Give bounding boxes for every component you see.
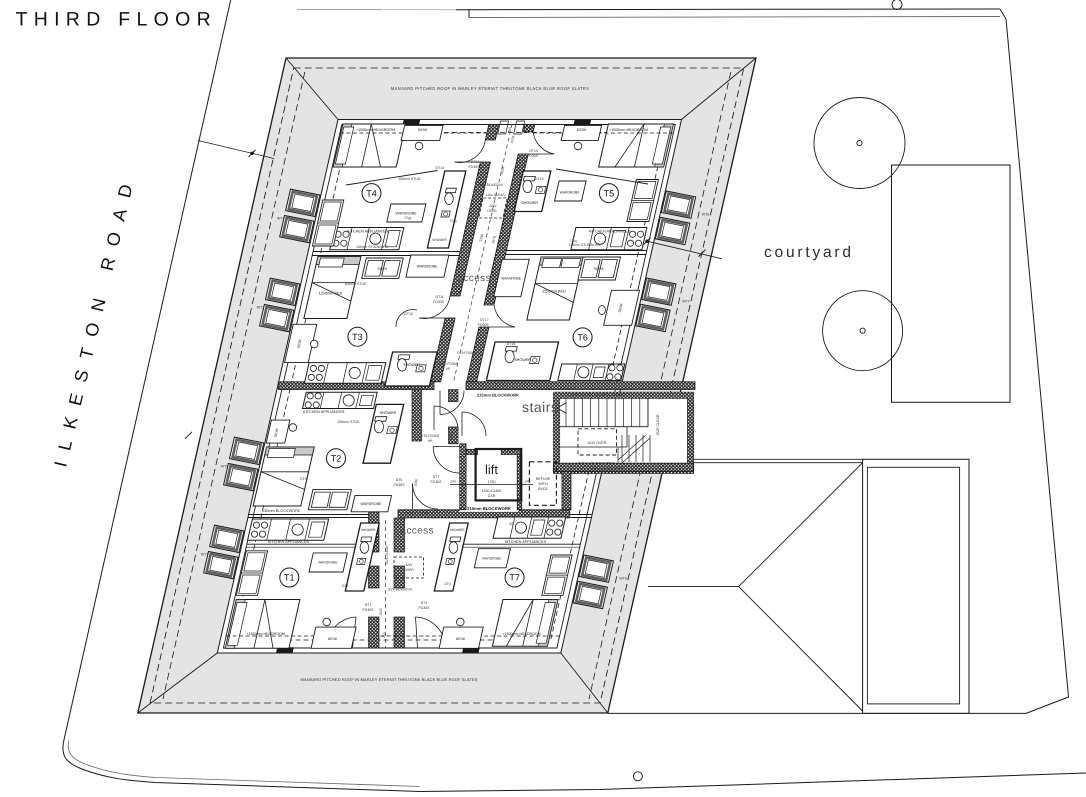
- svg-text:SVP BOXED IN: SVP BOXED IN: [479, 183, 503, 187]
- svg-text:FD30S: FD30S: [527, 154, 539, 158]
- svg-text:DT10 FD30S: DT10 FD30S: [438, 362, 459, 366]
- svg-text:WT7: WT7: [682, 299, 690, 303]
- svg-text:T5: T5: [604, 188, 615, 198]
- svg-text:courtyard: courtyard: [764, 244, 854, 261]
- svg-text:140mm BLOCKWORK: 140mm BLOCKWORK: [590, 466, 625, 470]
- svg-text:WARDROBE: WARDROBE: [318, 561, 338, 565]
- svg-text:FD30S: FD30S: [431, 480, 443, 484]
- svg-text:SHOWER: SHOWER: [432, 238, 447, 242]
- svg-text:T1: T1: [284, 573, 295, 583]
- svg-text:WITH: WITH: [538, 482, 548, 486]
- svg-text:VP: VP: [428, 439, 433, 443]
- svg-text:access: access: [458, 273, 492, 284]
- svg-text:AOV: AOV: [489, 204, 497, 208]
- svg-text:KITCHEN APPLIANCES: KITCHEN APPLIANCES: [589, 230, 631, 234]
- svg-text:+1500mm HEADROOM: +1500mm HEADROOM: [356, 128, 395, 132]
- svg-text:2525 CLEAR: 2525 CLEAR: [385, 545, 389, 565]
- svg-text:DT5: DT5: [396, 478, 403, 482]
- svg-text:FD30S: FD30S: [394, 483, 406, 487]
- svg-text:SHOWER: SHOWER: [514, 358, 531, 362]
- svg-text:1200 CLEAR: 1200 CLEAR: [486, 193, 506, 197]
- svg-text:FD30S: FD30S: [363, 608, 375, 612]
- svg-text:DT15: DT15: [529, 149, 538, 153]
- svg-text:DESK: DESK: [577, 128, 587, 132]
- svg-text:215mm BLOCKWORK: 215mm BLOCKWORK: [477, 393, 519, 398]
- svg-text:+1500mm HEADROOM: +1500mm HEADROOM: [502, 632, 540, 636]
- svg-text:CAR: CAR: [488, 494, 496, 498]
- svg-text:DT4: DT4: [444, 582, 451, 586]
- svg-text:2525 CLEAR: 2525 CLEAR: [656, 414, 660, 435]
- svg-text:PRECAST CONCRETE FLIGHT: PRECAST CONCRETE FLIGHT: [571, 393, 625, 397]
- svg-text:T4: T4: [366, 188, 377, 198]
- svg-text:AOV: AOV: [405, 563, 413, 567]
- svg-text:1100 x 1400: 1100 x 1400: [482, 489, 502, 493]
- svg-text:1250mm BED: 1250mm BED: [319, 292, 343, 296]
- svg-text:DT17: DT17: [480, 318, 489, 322]
- svg-text:DT1: DT1: [365, 603, 372, 607]
- svg-text:DESK: DESK: [418, 128, 428, 132]
- svg-text:WARDROBE: WARDROBE: [501, 277, 522, 281]
- svg-text:130mm STUDWORK: 130mm STUDWORK: [356, 245, 389, 249]
- svg-text:WT1: WT1: [201, 552, 209, 556]
- svg-text:BVCE: BVCE: [538, 487, 548, 491]
- svg-text:OVER: OVER: [404, 568, 414, 572]
- svg-text:100mm STUD: 100mm STUD: [344, 282, 367, 286]
- svg-text:DT7: DT7: [433, 475, 440, 479]
- svg-text:MANSARD PITCHED ROOF IN MARLEY: MANSARD PITCHED ROOF IN MARLEY ETERNIT T…: [391, 86, 589, 91]
- svg-text:DT12: DT12: [404, 312, 413, 316]
- svg-text:WARDROBE: WARDROBE: [482, 557, 502, 561]
- svg-text:THIRD FLOOR: THIRD FLOOR: [16, 9, 217, 31]
- svg-text:130mm STUDWORK: 130mm STUDWORK: [569, 243, 602, 247]
- svg-text:T2: T2: [331, 454, 342, 464]
- svg-text:DT9 FD30S: DT9 FD30S: [457, 351, 476, 355]
- svg-text:240: 240: [450, 480, 456, 484]
- svg-text:MANSARD PITCHED ROOF IN MARLEY: MANSARD PITCHED ROOF IN MARLEY ETERNIT T…: [301, 677, 478, 682]
- svg-text:REFUSE: REFUSE: [536, 477, 551, 481]
- svg-text:DT5: DT5: [300, 477, 307, 481]
- svg-text:DT3: DT3: [421, 601, 428, 605]
- svg-text:DT11: DT11: [435, 295, 443, 299]
- svg-text:DT13: DT13: [471, 160, 480, 164]
- svg-text:KITCHEN APPLIANCES: KITCHEN APPLIANCES: [268, 540, 310, 544]
- svg-text:lift: lift: [485, 462, 498, 477]
- svg-text:T3: T3: [352, 332, 363, 342]
- svg-text:DESK: DESK: [456, 637, 466, 641]
- svg-text:T6: T6: [577, 333, 588, 343]
- svg-text:1250mm BED: 1250mm BED: [542, 290, 566, 294]
- svg-text:FD30S: FD30S: [433, 300, 445, 304]
- svg-text:SVP BOXED IN: SVP BOXED IN: [388, 588, 412, 592]
- svg-text:SHOWER: SHOWER: [521, 201, 538, 205]
- svg-text:DT6 FD30S: DT6 FD30S: [421, 434, 440, 438]
- svg-text:DESK: DESK: [328, 637, 338, 641]
- svg-text:SHOWER: SHOWER: [403, 363, 420, 367]
- svg-text:1525: 1525: [379, 608, 383, 616]
- svg-text:AOV OVER: AOV OVER: [588, 441, 607, 445]
- svg-text:FD30S: FD30S: [419, 606, 431, 610]
- svg-text:SHOWER: SHOWER: [380, 411, 397, 415]
- svg-text:+1500mm HEADROOM: +1500mm HEADROOM: [246, 632, 284, 636]
- svg-text:WARDROBE: WARDROBE: [417, 265, 439, 269]
- svg-text:DT2: DT2: [342, 584, 349, 588]
- svg-text:215mm BLOCKWORK: 215mm BLOCKWORK: [467, 506, 511, 511]
- svg-text:LINTOL OVER: LINTOL OVER: [404, 512, 429, 516]
- svg-text:FD30S: FD30S: [469, 165, 481, 169]
- svg-text:KITCHEN APPLIANCES: KITCHEN APPLIANCES: [347, 230, 389, 234]
- svg-text:FD30S: FD30S: [478, 323, 490, 327]
- svg-text:access: access: [401, 526, 435, 537]
- svg-text:WARDROBE: WARDROBE: [560, 191, 581, 195]
- svg-text:100mm STUD: 100mm STUD: [398, 177, 421, 181]
- svg-text:WT4: WT4: [277, 216, 285, 220]
- svg-text:DT18: DT18: [507, 342, 516, 346]
- svg-text:KITCHEN APPLIANCES: KITCHEN APPLIANCES: [303, 410, 345, 414]
- svg-text:108mm STUD: 108mm STUD: [337, 420, 360, 424]
- svg-text:1760: 1760: [488, 480, 496, 484]
- svg-text:VP: VP: [446, 367, 451, 371]
- svg-text:WT2: WT2: [221, 464, 229, 468]
- svg-text:SOFA: SOFA: [377, 267, 387, 271]
- svg-text:135mm BLOCKWORK: 135mm BLOCKWORK: [262, 509, 301, 513]
- svg-text:SS: SS: [509, 522, 514, 526]
- svg-text:DT14: DT14: [436, 166, 445, 170]
- svg-text:stairs: stairs: [522, 399, 558, 415]
- svg-text:DT16: DT16: [535, 177, 544, 181]
- svg-text:KITCHEN APPLIANCES: KITCHEN APPLIANCES: [505, 540, 547, 544]
- svg-text:OVER: OVER: [487, 209, 497, 213]
- svg-text:SHOWER: SHOWER: [361, 528, 376, 532]
- svg-text:SHOWER: SHOWER: [450, 528, 465, 532]
- svg-text:250: 250: [382, 632, 386, 638]
- svg-text:WARDROBE: WARDROBE: [360, 502, 382, 506]
- svg-text:WT5: WT5: [702, 212, 710, 216]
- svg-text:WT6: WT6: [619, 576, 627, 580]
- svg-text:+1500mm HEADROOM: +1500mm HEADROOM: [609, 128, 648, 132]
- svg-text:SOFA: SOFA: [594, 267, 604, 271]
- svg-text:WT3: WT3: [257, 305, 265, 309]
- svg-text:T7: T7: [509, 573, 520, 583]
